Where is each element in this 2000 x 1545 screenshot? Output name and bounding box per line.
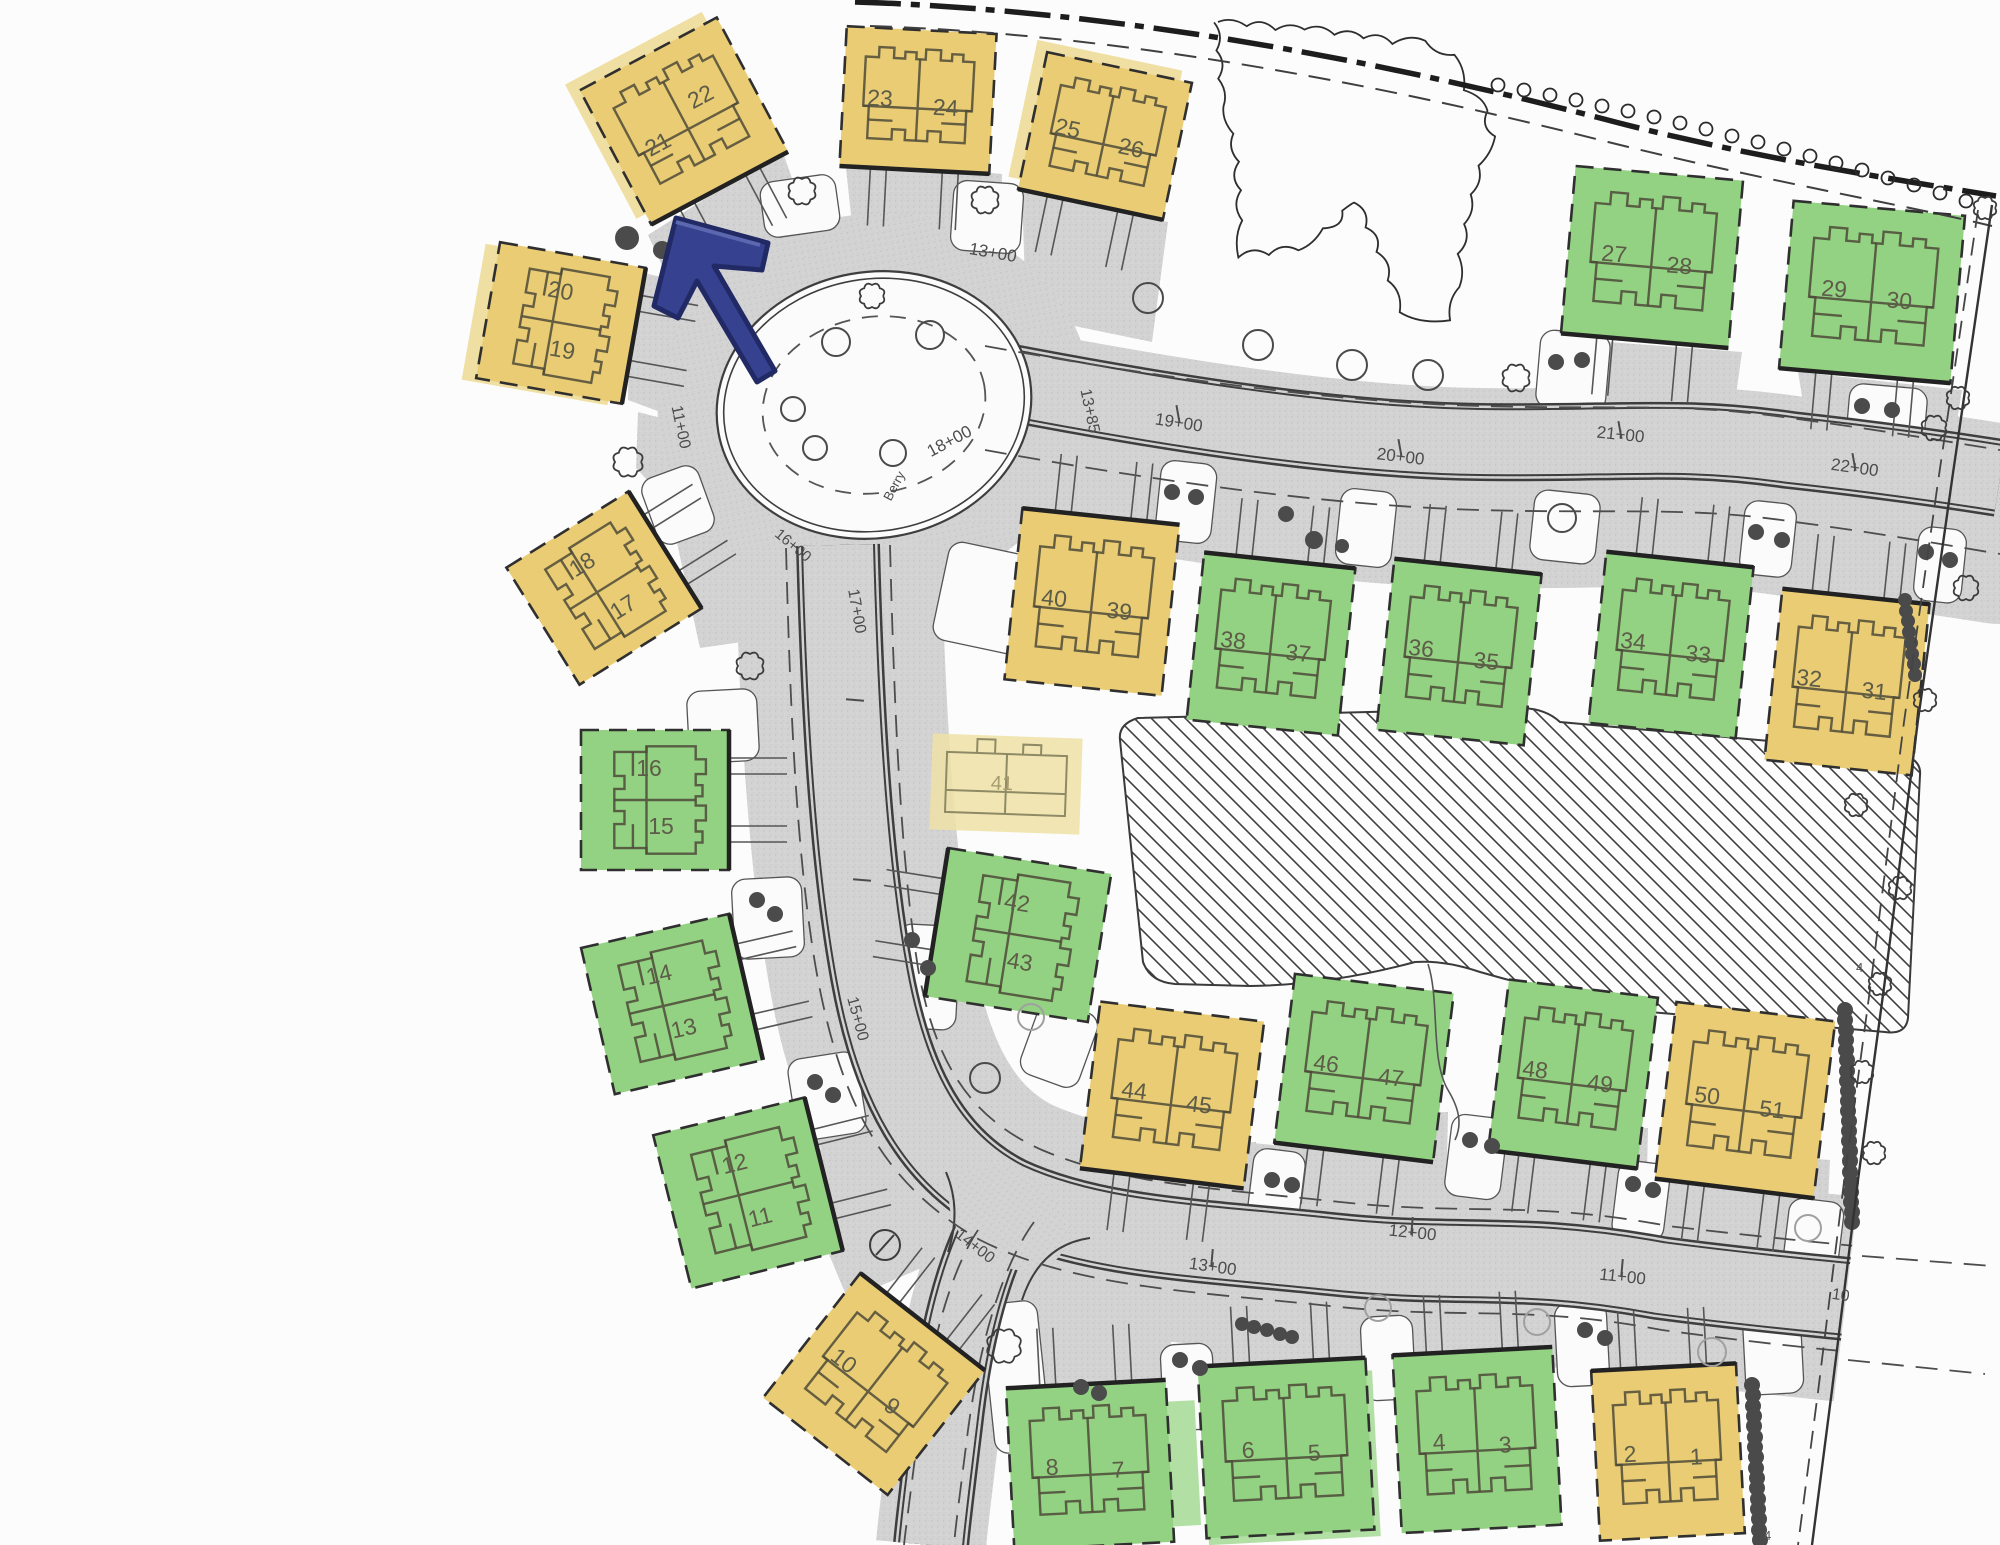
svg-text:2: 2 [1623,1441,1637,1468]
svg-text:7: 7 [1111,1456,1125,1483]
svg-text:32: 32 [1795,664,1823,693]
svg-text:29: 29 [1820,275,1848,303]
svg-text:34: 34 [1619,627,1647,656]
svg-text:19: 19 [548,335,578,365]
svg-text:25: 25 [1053,113,1083,144]
svg-text:24: 24 [932,94,959,121]
svg-text:4: 4 [1764,1528,1771,1543]
svg-text:27: 27 [1600,240,1628,268]
svg-text:35: 35 [1472,647,1500,676]
svg-text:26: 26 [1116,132,1146,163]
svg-text:23: 23 [867,84,894,111]
svg-text:16: 16 [636,755,662,781]
svg-text:48: 48 [1521,1055,1550,1084]
svg-text:37: 37 [1284,639,1312,668]
svg-text:38: 38 [1219,626,1247,655]
svg-text:46: 46 [1312,1049,1341,1078]
svg-text:4: 4 [1856,960,1863,975]
svg-text:51: 51 [1758,1095,1787,1124]
svg-text:36: 36 [1407,634,1435,663]
svg-text:15: 15 [648,813,674,839]
svg-text:45: 45 [1185,1090,1214,1119]
svg-text:40: 40 [1040,584,1068,613]
svg-text:50: 50 [1693,1081,1722,1110]
svg-text:31: 31 [1860,677,1888,706]
svg-text:39: 39 [1105,597,1133,626]
svg-text:33: 33 [1684,640,1712,669]
svg-text:41: 41 [991,772,1014,795]
svg-text:44: 44 [1120,1076,1149,1105]
svg-text:1: 1 [1689,1443,1703,1470]
svg-text:47: 47 [1377,1063,1406,1092]
svg-text:49: 49 [1586,1069,1615,1098]
svg-text:42: 42 [1002,888,1031,918]
svg-text:20: 20 [546,275,576,305]
svg-text:8: 8 [1045,1454,1059,1481]
svg-text:28: 28 [1665,251,1693,279]
svg-text:10: 10 [1831,1286,1851,1305]
svg-text:30: 30 [1885,286,1913,314]
svg-text:5: 5 [1307,1439,1321,1466]
svg-text:43: 43 [1005,947,1034,977]
svg-text:3: 3 [1498,1431,1512,1458]
svg-text:4: 4 [1432,1429,1446,1456]
svg-text:6: 6 [1241,1437,1255,1464]
